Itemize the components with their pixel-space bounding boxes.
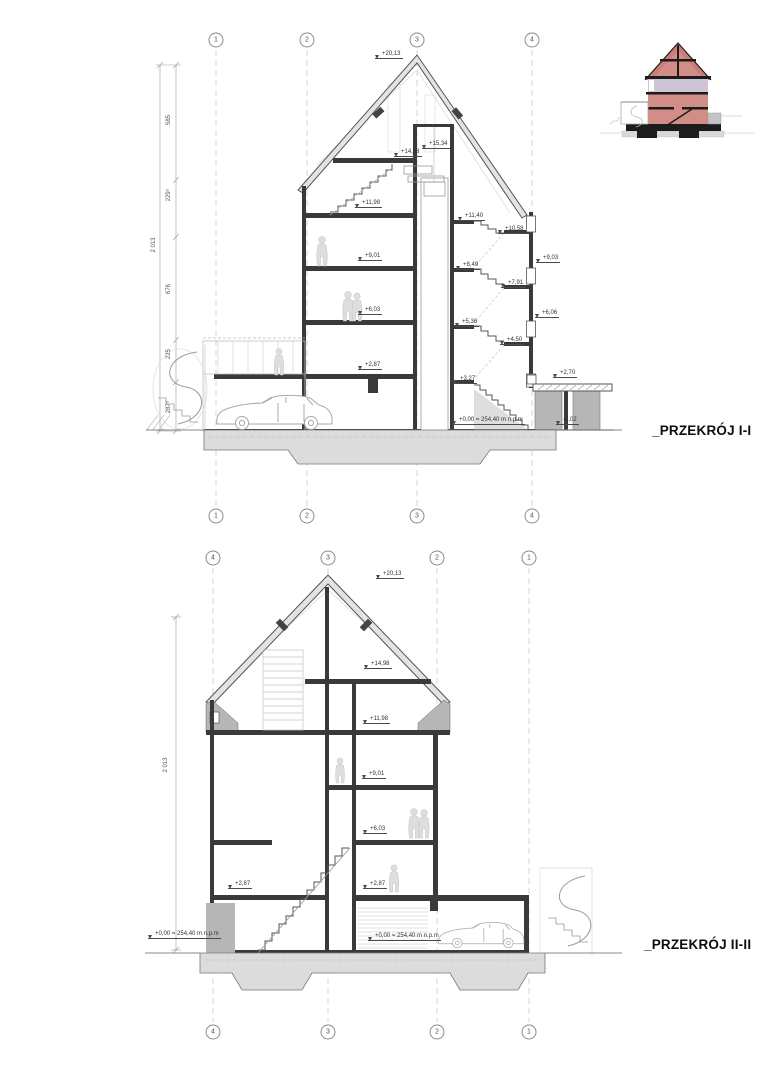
roof [298,55,527,218]
spiral-stair [540,868,592,956]
attic-stair [263,650,303,730]
walls-floors [206,587,529,955]
car-silhouette [217,395,332,429]
drawing-sheet: 12341234+20,13+15,34+14,98+11,98+11,40+1… [0,0,763,1080]
stairs [258,848,350,953]
person-silhouette [274,237,362,375]
car-silhouette [439,923,524,948]
ground-base [146,430,622,464]
building-section-minimap [600,43,755,138]
right-terrace [529,384,614,430]
architectural-sections-drawing [0,0,763,1080]
section1-drawing [146,50,622,506]
garage [358,908,524,948]
spiral-stair [146,345,207,431]
person-silhouette [336,758,429,892]
section2-drawing [145,568,622,1022]
elevator-shaft [404,127,448,455]
dimension-lines [171,614,181,953]
ground-base [145,953,622,990]
section2-title: _PRZEKRÓJ II-II [644,937,751,952]
dimension-lines [156,62,181,434]
section1-title: _PRZEKRÓJ I-I [652,423,751,438]
